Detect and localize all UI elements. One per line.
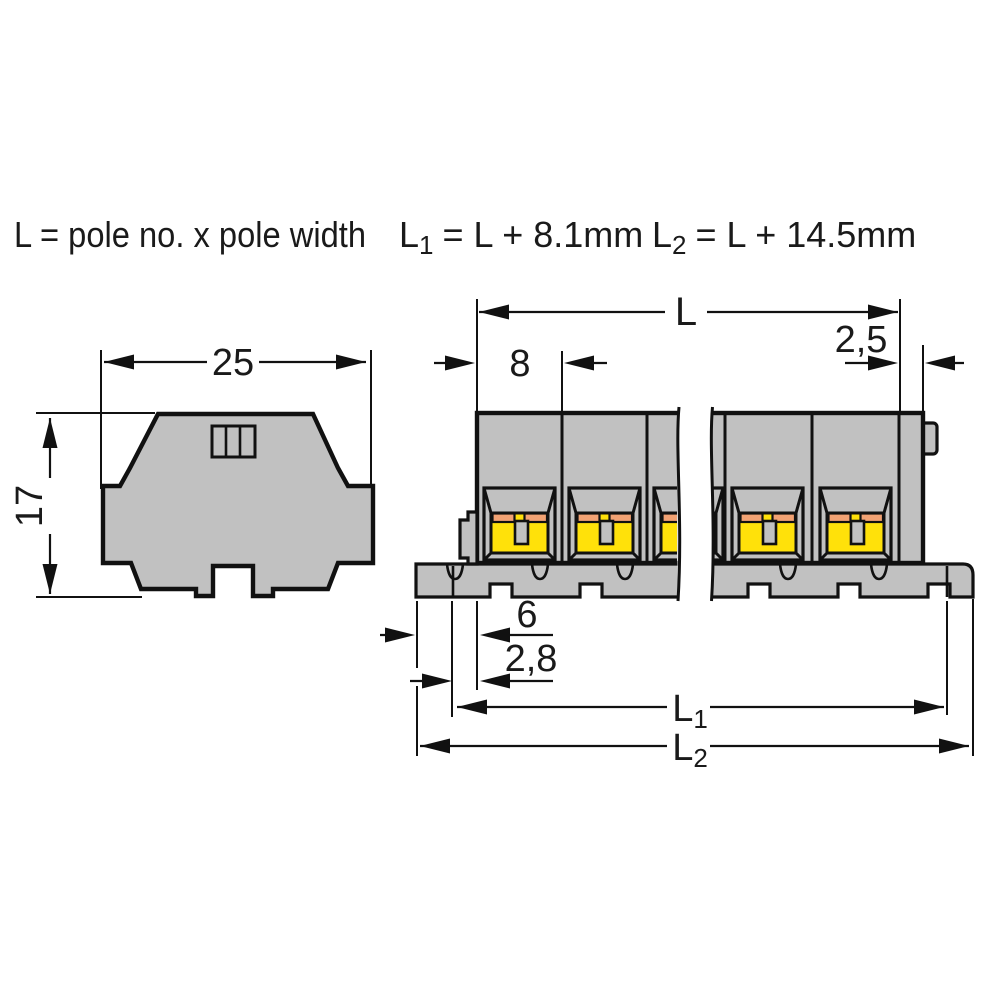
terminal-pole [569, 488, 640, 560]
pole-width-label: 8 [509, 343, 530, 385]
foot-depth-label: 6 [516, 594, 537, 636]
l1-base: L [672, 688, 693, 730]
terminal-pole [820, 488, 891, 560]
pole-width-dimension: 8 [434, 343, 607, 385]
terminal-pole [732, 488, 803, 560]
side-view: 25 17 [9, 342, 373, 597]
l1-subscript: 1 [693, 704, 707, 734]
side-height-label: 17 [9, 485, 51, 527]
pole-formula-label: L = pole no. x pole width [14, 214, 366, 255]
foot-depth-dimension: 6 [380, 594, 553, 643]
l2-subscript: 2 [693, 743, 707, 773]
l2-formula-rest: = L + 14.5mm [696, 214, 917, 255]
l1-formula-base: L [399, 214, 419, 255]
l1-dimension: L1 [457, 688, 944, 734]
l1-formula-rest: = L + 8.1mm [443, 214, 644, 255]
terminal-block-technical-drawing: L = pole no. x pole width L1= L + 8.1mm … [0, 0, 1000, 1000]
l2-base: L [672, 727, 693, 769]
l1-formula-label: L1= L + 8.1mm [399, 214, 643, 260]
break-lines [678, 403, 714, 603]
l1-formula-subscript: 1 [419, 230, 433, 260]
l2-formula-subscript: 2 [672, 230, 686, 260]
l2-formula-label: L2= L + 14.5mm [652, 214, 916, 260]
foot-offset-dimension: 2,8 [410, 638, 557, 689]
terminal-pole [484, 488, 555, 560]
formula-row: L = pole no. x pole width L1= L + 8.1mm … [14, 214, 916, 260]
front-view: L 8 2,5 6 2,8 [380, 290, 973, 773]
side-height-dimension: 17 [9, 418, 58, 594]
l2-formula-base: L [652, 214, 672, 255]
side-width-label: 25 [212, 342, 254, 384]
left-flange [460, 512, 477, 564]
mounting-foot-right [711, 564, 973, 597]
side-width-dimension: 25 [104, 342, 366, 384]
end-plate-label: 2,5 [835, 319, 888, 361]
foot-offset-label: 2,8 [505, 638, 558, 680]
side-view-housing [103, 414, 373, 596]
length-label: L [675, 290, 697, 334]
